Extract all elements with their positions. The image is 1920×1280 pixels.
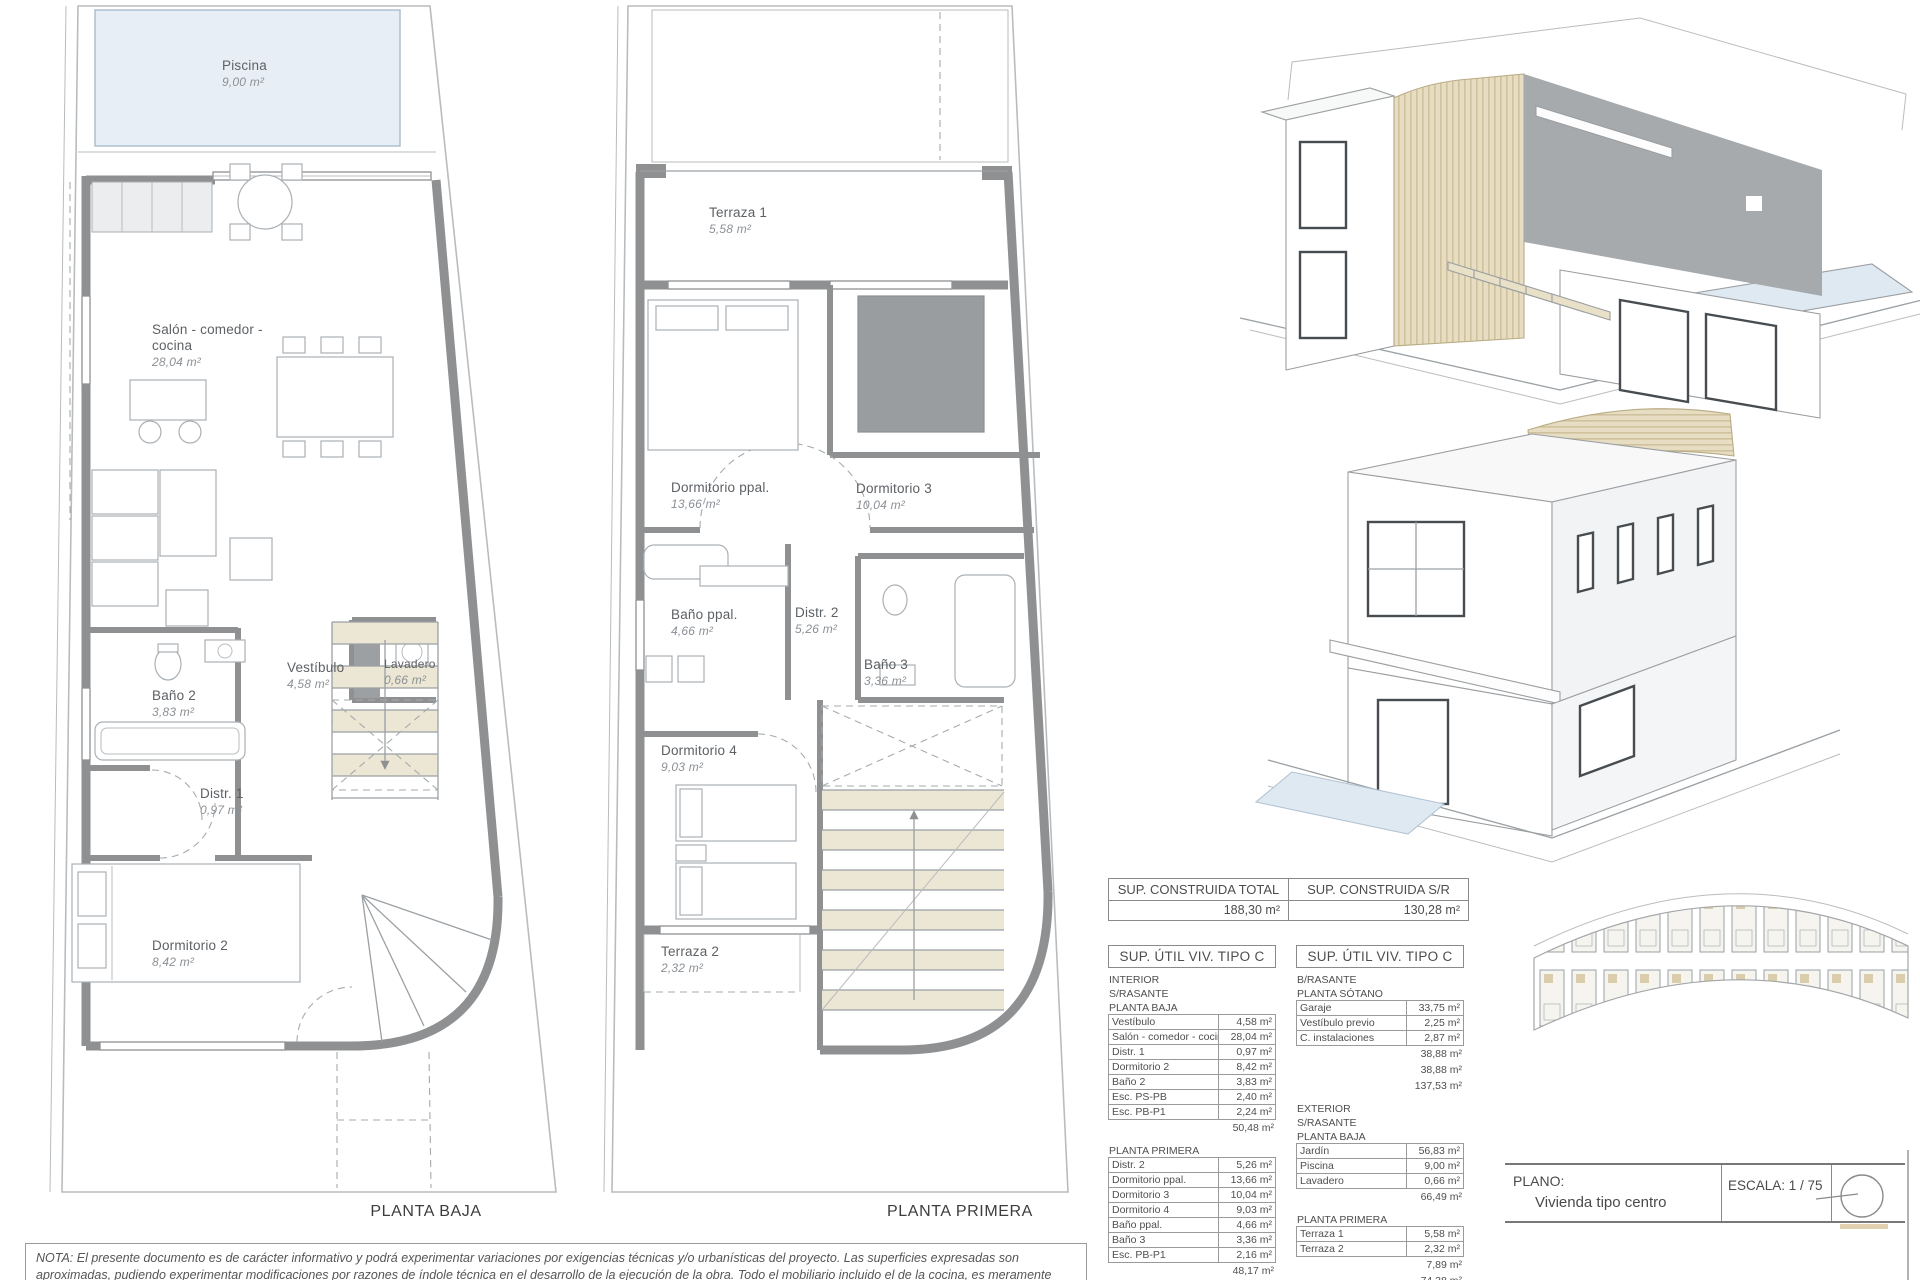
dark-facade-panel xyxy=(1524,74,1822,296)
site-plan-overview xyxy=(1534,894,1908,1030)
drawing-canvas: .w8{stroke:#8e9092;stroke-width:9;fill:n… xyxy=(0,0,1920,1280)
axon-view-top xyxy=(1240,18,1920,418)
axon-view-bottom xyxy=(1256,409,1840,862)
architectural-sheet: .w8{stroke:#8e9092;stroke-width:9;fill:n… xyxy=(0,0,1920,1280)
wood-slat-wall xyxy=(1394,74,1524,346)
pool-shape xyxy=(95,10,400,146)
planta-primera-drawing xyxy=(604,6,1068,1192)
north-compass xyxy=(1816,1175,1888,1229)
planta-baja-drawing xyxy=(50,6,556,1192)
